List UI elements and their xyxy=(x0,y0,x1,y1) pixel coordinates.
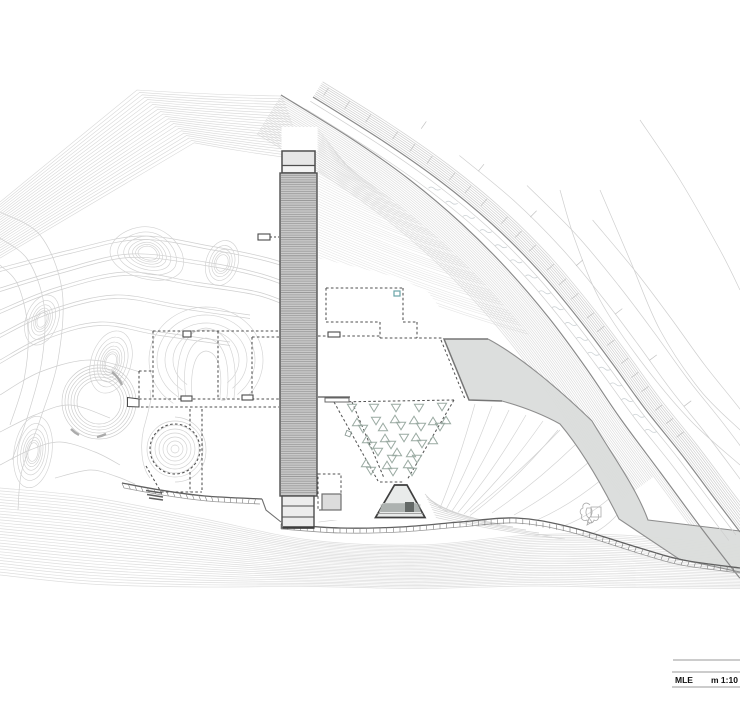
svg-text:m 1:10: m 1:10 xyxy=(711,675,738,685)
svg-text:MLE: MLE xyxy=(675,675,693,685)
